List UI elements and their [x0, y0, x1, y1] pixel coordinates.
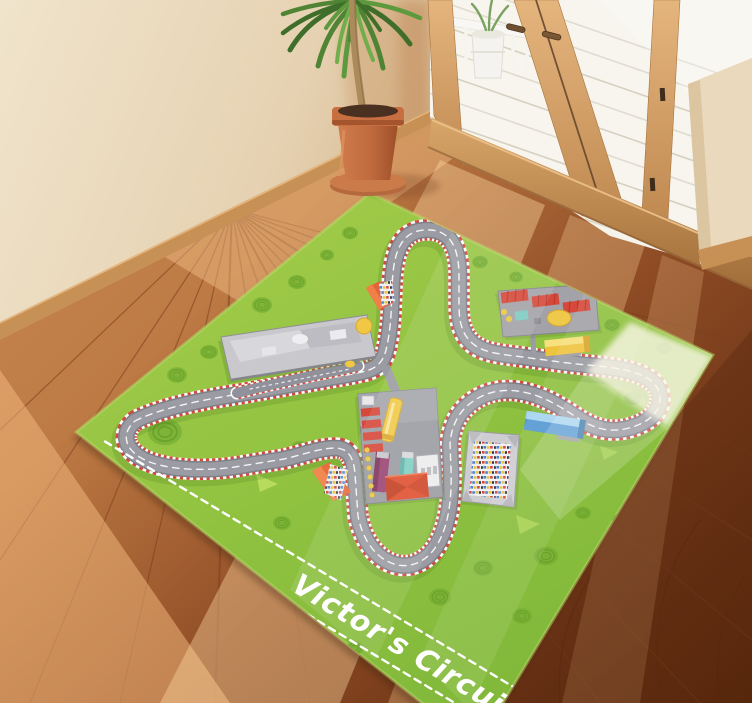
- pot-soil: [338, 105, 398, 118]
- yellow-mound: [547, 310, 571, 326]
- door-hinge: [650, 178, 656, 191]
- door-hinge: [660, 88, 666, 101]
- yellow-dome: [356, 318, 372, 334]
- room-photo: Victor's Circuit: [0, 0, 752, 703]
- scene-svg: Victor's Circuit: [0, 0, 752, 703]
